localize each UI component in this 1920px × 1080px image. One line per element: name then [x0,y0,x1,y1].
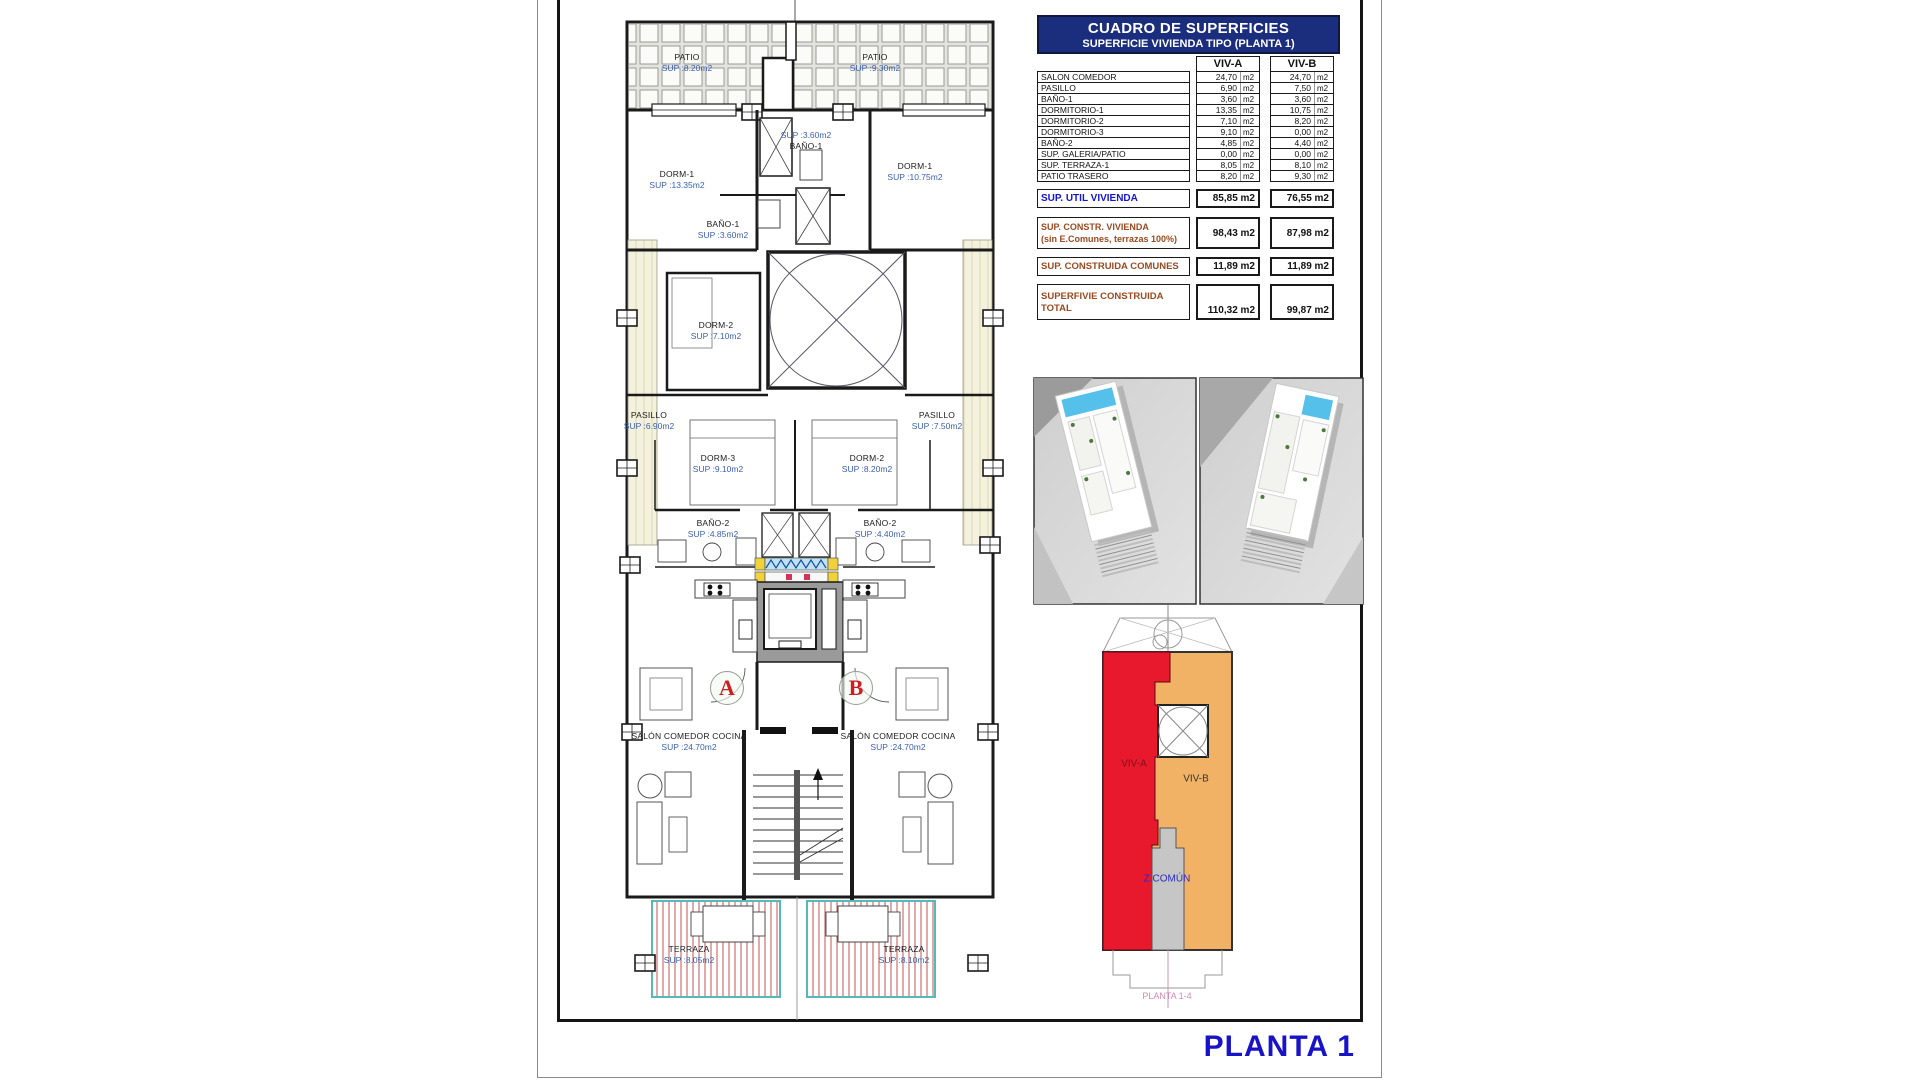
sheet-title-planta-1: PLANTA 1 [1100,1030,1355,1064]
room-label-patio-a: PATIOSUP :8.20m2 [662,52,712,74]
util-row: SUP. UTIL VIVIENDA 85,85 m2 76,55 m2 [1037,189,1340,208]
room-label-terraza-b: TERRAZASUP :8.10m2 [879,944,929,966]
surface-table-subtitle: SUPERFICIE VIVIENDA TIPO (PLANTA 1) [1039,38,1338,50]
unit-b-marker: B [839,671,873,705]
room-label-bano2-b: BAÑO-2SUP :4.40m2 [855,518,905,540]
sheet-inner-frame-left [557,0,560,1021]
room-label-bano1-top: SUP :3.60m2BAÑO-1 [781,130,831,152]
key-plan-viv-b-label: VIV-B [1183,774,1209,785]
key-plan-diagram [1095,605,1240,1015]
sheet-outer-border-left [537,0,538,1078]
floor-plan-drawing [600,0,1020,1030]
key-plan-common-label: Z.COMÚN [1144,874,1191,885]
sheet-outer-border-right [1381,0,1382,1078]
surface-table-header: CUADRO DE SUPERFICIES SUPERFICIE VIVIEND… [1037,15,1340,54]
column-header-viv-b: VIV-B [1270,56,1334,72]
render-right [1200,378,1363,604]
room-label-pasillo-a: PASILLOSUP :6.90m2 [624,410,674,432]
constr-row: SUP. CONSTR. VIVIENDA(sin E.Comunes, ter… [1037,217,1340,249]
room-label-dorm3-a: DORM-3SUP :9.10m2 [693,453,743,475]
comunes-row: SUP. CONSTRUIDA COMUNES 11,89 m2 11,89 m… [1037,257,1340,276]
room-label-terraza-a: TERRAZASUP :8.05m2 [664,944,714,966]
surface-table-title: CUADRO DE SUPERFICIES [1039,20,1338,37]
aerial-render-images [1033,377,1364,605]
total-row: SUPERFIVIE CONSTRUIDATOTAL 110,32 m2 99,… [1037,284,1340,320]
room-label-salon-b: SALÓN COMEDOR COCINASUP :24.70m2 [841,731,956,753]
room-label-patio-b: PATIOSUP :9.30m2 [850,52,900,74]
room-label-dorm1-a: DORM-1SUP :13.35m2 [649,169,704,191]
room-label-dorm2-b: DORM-2SUP :8.20m2 [842,453,892,475]
room-label-pasillo-b: PASILLOSUP :7.50m2 [912,410,962,432]
room-label-salon-a: SALÓN COMEDOR COCINASUP :24.70m2 [632,731,747,753]
render-left [1034,378,1196,604]
key-plan-caption: PLANTA 1-4 [1142,991,1191,1001]
unit-a-marker: A [710,671,744,705]
key-plan-viv-a-label: VIV-A [1121,759,1147,770]
room-label-bano2-a: BAÑO-2SUP :4.85m2 [688,518,738,540]
room-label-dorm1-b: DORM-1SUP :10.75m2 [887,161,942,183]
room-label-dorm2-a: DORM-2SUP :7.10m2 [691,320,741,342]
sheet-outer-border-bottom [537,1077,1382,1078]
table-row: PATIO TRASERO8,20m29,30m2 [1037,170,1340,182]
column-header-viv-a: VIV-A [1196,56,1260,72]
room-label-bano1-a: BAÑO-1SUP :3.60m2 [698,219,748,241]
surface-table: CUADRO DE SUPERFICIES SUPERFICIE VIVIEND… [1037,15,1340,320]
